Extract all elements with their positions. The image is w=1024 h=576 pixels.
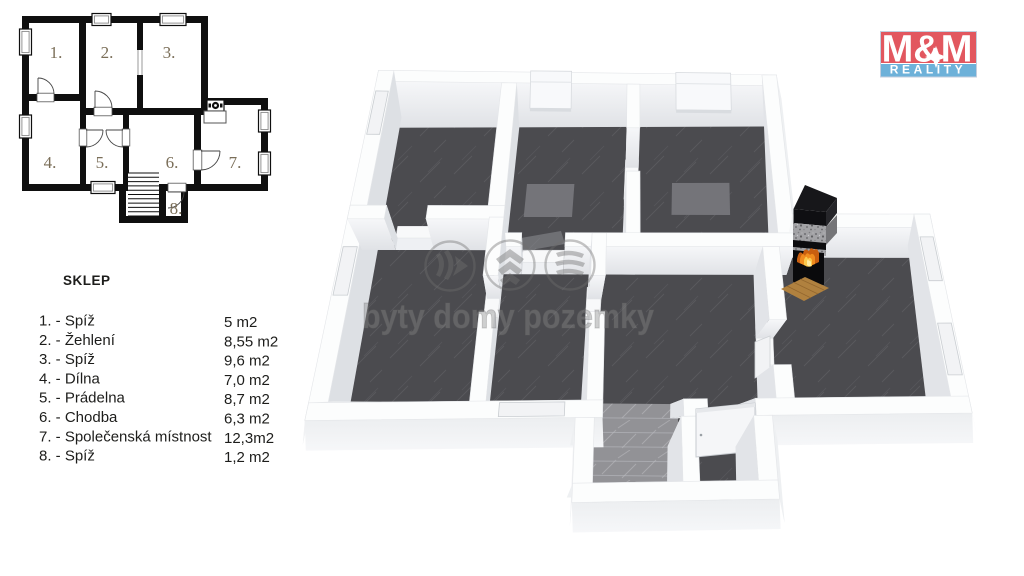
svg-text:7.: 7. [229, 153, 242, 172]
svg-text:4. - Dílna: 4. - Dílna [39, 370, 101, 387]
svg-text:2. - Žehlení: 2. - Žehlení [39, 332, 116, 349]
svg-text:8.: 8. [170, 199, 183, 218]
svg-text:SKLEP: SKLEP [63, 273, 111, 288]
svg-text:3. - Spíž: 3. - Spíž [39, 351, 95, 368]
svg-text:1. - Spíž: 1. - Spíž [39, 313, 95, 330]
svg-text:8,55 m2: 8,55 m2 [224, 333, 278, 350]
svg-text:5.: 5. [96, 153, 109, 172]
svg-text:1.: 1. [50, 43, 63, 62]
svg-text:5. - Prádelna: 5. - Prádelna [39, 390, 126, 407]
svg-text:1,2 m2: 1,2 m2 [224, 449, 270, 466]
svg-text:4.: 4. [44, 153, 57, 172]
svg-text:8. - Spíž: 8. - Spíž [39, 448, 95, 465]
svg-text:6.: 6. [166, 153, 179, 172]
svg-text:REALITY: REALITY [890, 63, 967, 77]
svg-text:6. - Chodba: 6. - Chodba [39, 409, 118, 426]
svg-text:5 m2: 5 m2 [224, 314, 257, 331]
svg-text:7. - Společenská místnost: 7. - Společenská místnost [39, 428, 212, 445]
svg-text:2.: 2. [101, 43, 114, 62]
svg-text:6,3 m2: 6,3 m2 [224, 411, 270, 428]
svg-text:9,6 m2: 9,6 m2 [224, 353, 270, 370]
svg-text:8,7 m2: 8,7 m2 [224, 391, 270, 408]
svg-text:7,0 m2: 7,0 m2 [224, 372, 270, 389]
svg-text:byty domy pozemky: byty domy pozemky [362, 298, 654, 336]
svg-text:3.: 3. [163, 43, 176, 62]
svg-text:12,3m2: 12,3m2 [224, 430, 274, 447]
